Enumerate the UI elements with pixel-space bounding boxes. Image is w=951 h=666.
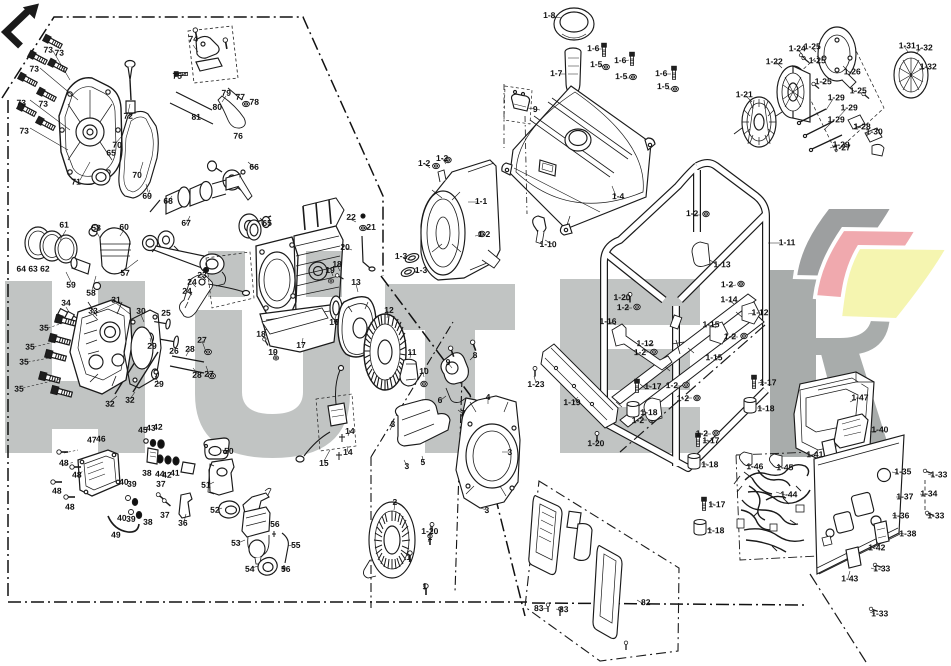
svg-text:1-7: 1-7 (550, 68, 563, 78)
svg-text:1-20: 1-20 (587, 438, 604, 448)
svg-text:1-2: 1-2 (724, 331, 737, 341)
svg-text:1-34: 1-34 (920, 488, 937, 498)
svg-text:83: 83 (534, 603, 544, 613)
svg-text:30: 30 (136, 306, 146, 316)
svg-text:1-2: 1-2 (721, 279, 734, 289)
svg-text:25: 25 (161, 308, 171, 318)
svg-text:26: 26 (169, 346, 179, 356)
svg-text:77: 77 (235, 92, 245, 102)
svg-text:78: 78 (249, 97, 259, 107)
svg-text:2: 2 (392, 497, 397, 507)
svg-text:74: 74 (189, 34, 199, 44)
svg-text:48: 48 (59, 458, 69, 468)
svg-text:42: 42 (153, 422, 163, 432)
svg-text:35: 35 (19, 357, 29, 367)
svg-text:1-37: 1-37 (896, 491, 913, 501)
svg-text:1-4: 1-4 (612, 191, 625, 201)
svg-text:14: 14 (345, 426, 355, 436)
svg-text:1-25: 1-25 (804, 41, 821, 51)
svg-text:1-20: 1-20 (421, 526, 438, 536)
svg-text:1-29: 1-29 (841, 102, 858, 112)
svg-text:51: 51 (201, 480, 211, 490)
svg-text:34: 34 (61, 298, 71, 308)
svg-text:35: 35 (39, 323, 49, 333)
svg-text:1-2: 1-2 (666, 380, 679, 390)
svg-text:33: 33 (88, 306, 98, 316)
svg-text:82: 82 (641, 597, 651, 607)
svg-text:1-33: 1-33 (930, 469, 947, 479)
svg-text:1-25: 1-25 (809, 55, 826, 65)
svg-text:1-22: 1-22 (766, 56, 783, 66)
svg-text:15: 15 (319, 458, 329, 468)
svg-text:1-2: 1-2 (686, 208, 699, 218)
svg-text:19: 19 (268, 347, 278, 357)
svg-text:83: 83 (559, 604, 569, 614)
svg-text:20: 20 (340, 242, 350, 252)
svg-text:81: 81 (191, 112, 201, 122)
svg-text:1-41: 1-41 (806, 449, 823, 459)
svg-text:1-8: 1-8 (543, 10, 556, 20)
svg-text:73: 73 (19, 126, 29, 136)
svg-text:1-6: 1-6 (587, 43, 600, 53)
svg-text:76: 76 (233, 131, 243, 141)
svg-text:35: 35 (14, 384, 24, 394)
svg-text:1-47: 1-47 (851, 392, 868, 402)
svg-text:1-6: 1-6 (614, 55, 627, 65)
svg-text:52: 52 (210, 505, 220, 515)
svg-text:22: 22 (346, 212, 356, 222)
svg-text:1-42: 1-42 (868, 542, 885, 552)
svg-text:1-14: 1-14 (721, 294, 738, 304)
svg-text:19: 19 (325, 265, 335, 275)
svg-text:70: 70 (132, 170, 142, 180)
svg-text:73: 73 (29, 64, 39, 74)
svg-text:1-45: 1-45 (776, 462, 793, 472)
svg-text:57: 57 (120, 268, 130, 278)
svg-text:48: 48 (72, 470, 82, 480)
svg-text:1-10: 1-10 (540, 239, 557, 249)
svg-text:1-23: 1-23 (527, 379, 544, 389)
svg-text:1-27: 1-27 (834, 142, 851, 152)
svg-text:1-2: 1-2 (617, 302, 630, 312)
svg-text:66: 66 (249, 162, 259, 172)
svg-text:46: 46 (96, 434, 106, 444)
svg-text:80: 80 (212, 102, 222, 112)
svg-text:8: 8 (473, 350, 478, 360)
svg-text:36: 36 (178, 518, 188, 528)
svg-text:64 63 62: 64 63 62 (17, 264, 50, 274)
svg-text:67: 67 (181, 218, 191, 228)
svg-text:1-2: 1-2 (478, 229, 491, 239)
svg-text:1-6: 1-6 (655, 68, 668, 78)
svg-text:56: 56 (281, 564, 291, 574)
svg-text:28: 28 (192, 370, 202, 380)
svg-text:68: 68 (163, 196, 173, 206)
svg-text:1-25: 1-25 (850, 85, 867, 95)
svg-text:1-40: 1-40 (871, 424, 888, 434)
svg-text:38: 38 (142, 468, 152, 478)
svg-text:1-3: 1-3 (415, 265, 428, 275)
svg-text:1-11: 1-11 (779, 237, 796, 247)
svg-text:1-12: 1-12 (752, 307, 769, 317)
svg-text:1-5: 1-5 (615, 71, 628, 81)
svg-text:11: 11 (407, 347, 416, 357)
svg-text:1-3: 1-3 (395, 251, 408, 261)
svg-text:10: 10 (419, 366, 429, 376)
svg-text:1-20: 1-20 (614, 292, 631, 302)
svg-text:53: 53 (231, 538, 241, 548)
svg-text:12: 12 (384, 305, 394, 315)
svg-text:61: 61 (59, 220, 69, 230)
svg-text:54: 54 (245, 564, 255, 574)
svg-text:1-33: 1-33 (873, 563, 890, 573)
svg-text:65: 65 (106, 148, 116, 158)
svg-text:41: 41 (170, 468, 180, 478)
svg-text:35: 35 (25, 342, 35, 352)
svg-text:65: 65 (262, 218, 272, 228)
svg-text:39: 39 (127, 479, 137, 489)
svg-text:1-15: 1-15 (705, 352, 722, 362)
svg-text:1-46: 1-46 (746, 461, 763, 471)
svg-text:21: 21 (366, 222, 376, 232)
svg-text:1-25: 1-25 (815, 76, 832, 86)
svg-text:1-5: 1-5 (590, 59, 603, 69)
svg-text:1-21: 1-21 (736, 89, 753, 99)
svg-text:39: 39 (126, 514, 136, 524)
svg-text:49: 49 (111, 530, 121, 540)
svg-text:23: 23 (197, 270, 207, 280)
svg-text:56: 56 (270, 519, 280, 529)
svg-text:60: 60 (119, 222, 129, 232)
svg-text:6: 6 (438, 395, 443, 405)
svg-text:1: 1 (406, 552, 411, 562)
svg-text:5: 5 (421, 457, 426, 467)
svg-text:58: 58 (86, 288, 96, 298)
svg-text:1-16: 1-16 (599, 316, 616, 326)
svg-text:37: 37 (156, 479, 166, 489)
svg-text:1-35: 1-35 (894, 466, 911, 476)
svg-text:69: 69 (142, 191, 152, 201)
svg-text:18: 18 (256, 329, 266, 339)
svg-text:1-15: 1-15 (702, 319, 719, 329)
svg-text:73: 73 (16, 98, 26, 108)
svg-text:73: 73 (44, 45, 54, 55)
svg-text:1-31: 1-31 (899, 40, 916, 50)
svg-text:79: 79 (221, 88, 231, 98)
svg-text:7: 7 (461, 408, 466, 418)
svg-text:32: 32 (105, 399, 115, 409)
svg-text:38: 38 (143, 517, 153, 527)
svg-text:48: 48 (65, 502, 75, 512)
svg-text:1-26: 1-26 (844, 66, 861, 76)
svg-text:32: 32 (125, 395, 135, 405)
svg-text:27: 27 (197, 335, 207, 345)
svg-text:1-43: 1-43 (841, 573, 858, 583)
svg-text:1-18: 1-18 (640, 407, 657, 417)
svg-text:17: 17 (296, 340, 306, 350)
svg-text:1-32: 1-32 (920, 61, 937, 71)
svg-text:71: 71 (71, 177, 81, 187)
svg-text:1-33: 1-33 (927, 510, 944, 520)
svg-text:1: 1 (422, 581, 427, 591)
svg-text:1-5: 1-5 (657, 81, 670, 91)
svg-text:37: 37 (160, 510, 170, 520)
svg-text:28: 28 (185, 344, 195, 354)
svg-text:1-19: 1-19 (563, 397, 580, 407)
svg-text:1-29: 1-29 (828, 92, 845, 102)
svg-text:1-1: 1-1 (475, 196, 488, 206)
svg-text:1-17: 1-17 (702, 435, 719, 445)
svg-text:1-18: 1-18 (707, 525, 724, 535)
svg-text:1-29: 1-29 (828, 114, 845, 124)
svg-text:48: 48 (52, 486, 62, 496)
svg-text:59: 59 (66, 280, 76, 290)
